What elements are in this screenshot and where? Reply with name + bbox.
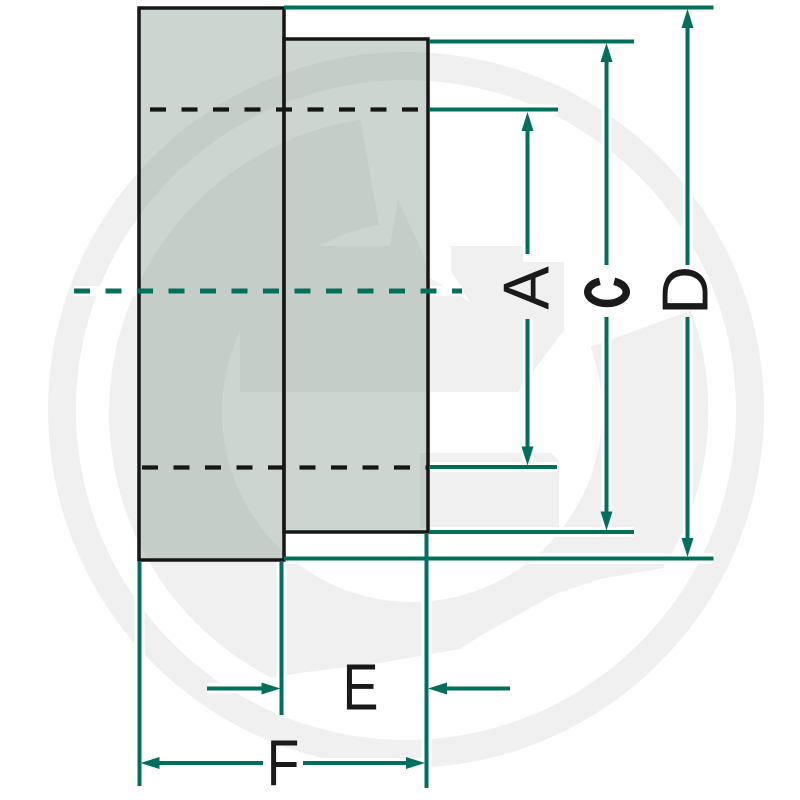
svg-text:D: D <box>650 266 722 315</box>
svg-text:A: A <box>490 266 563 310</box>
svg-text:F: F <box>267 726 300 799</box>
svg-text:E: E <box>343 651 379 724</box>
